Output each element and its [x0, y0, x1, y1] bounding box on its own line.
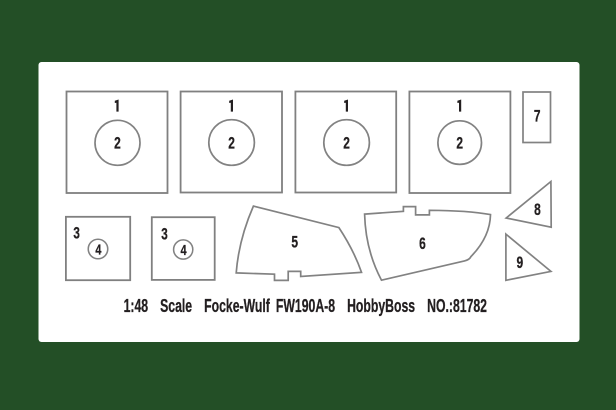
svg-text:4: 4 — [180, 241, 187, 258]
svg-text:2: 2 — [456, 135, 463, 153]
svg-text:6: 6 — [419, 235, 426, 253]
svg-text:1:48 Scale Focke-Wulf FW190A: 1:48 Scale Focke-Wulf FW190A-8 HobbyBoss… — [124, 295, 487, 316]
svg-text:2: 2 — [343, 135, 350, 153]
svg-text:9: 9 — [516, 254, 523, 272]
svg-text:5: 5 — [291, 234, 298, 252]
svg-text:2: 2 — [114, 135, 121, 153]
svg-text:7: 7 — [534, 108, 541, 126]
svg-text:8: 8 — [534, 201, 541, 219]
svg-text:3: 3 — [73, 223, 80, 241]
svg-text:2: 2 — [228, 135, 235, 153]
svg-text:3: 3 — [161, 224, 168, 242]
svg-text:4: 4 — [95, 241, 102, 258]
